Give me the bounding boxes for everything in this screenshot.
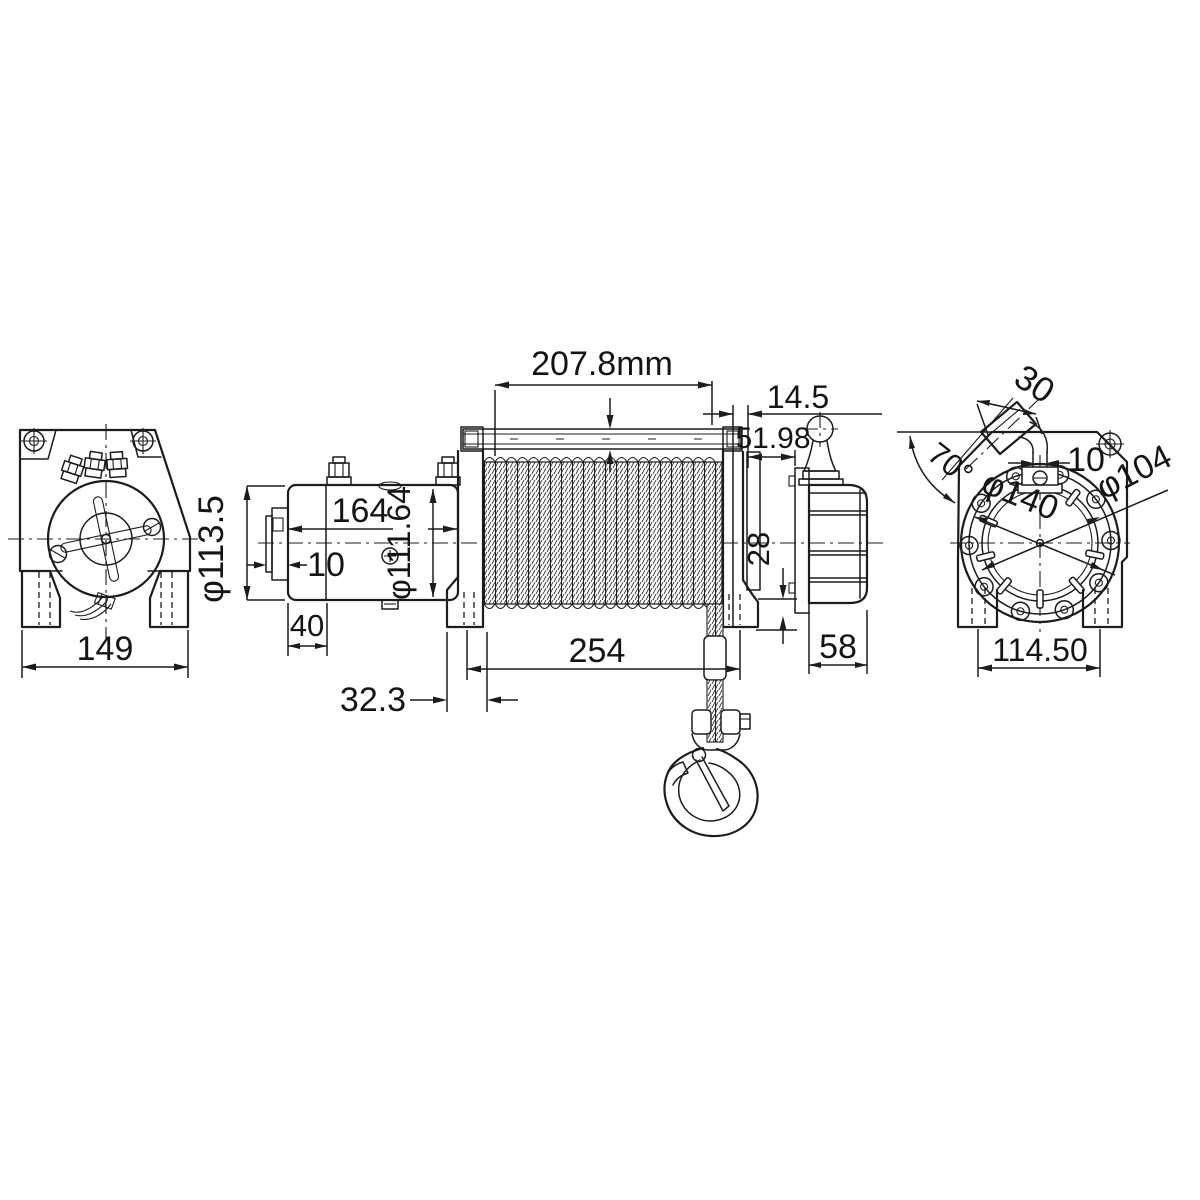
dim-label-40: 40 [290,608,324,643]
dim-overall-width: 149 [22,630,188,678]
cable-and-hook [665,604,758,836]
dim-label-51-98: 51.98 [735,422,810,455]
dim-label-114-50: 114.50 [992,632,1088,668]
dim-housing-width: 58 [809,610,867,674]
dim-drum-diameter: φ111.64 [381,486,437,600]
ear-bolt-right [130,428,156,454]
dim-label-207-8: 207.8mm [531,345,673,383]
dim-label-149: 149 [77,630,134,668]
winch-drawing-page: 149 φ113.5 [0,0,1200,1200]
dim-label-58: 58 [819,628,857,666]
spoke-bolt-right [144,519,161,536]
spoke-bolt-left [50,546,67,563]
dim-motor-diameter: φ113.5 [192,486,285,603]
dim-drum-length: 207.8mm [495,345,712,472]
tie-bar [461,427,742,451]
foot-left [22,571,60,627]
drum-cable [484,458,722,609]
dim-foot-spacing: 114.50 [978,629,1100,677]
dim-end-cap: 10 [247,546,345,584]
dim-label-113-5: φ113.5 [192,495,231,603]
dim-label-164: 164 [332,492,389,530]
dim-label-111-64: φ111.64 [381,486,417,600]
hook [665,748,758,836]
dim-motor-foot: 40 [288,603,327,656]
ear-bolt-left [21,428,47,454]
dim-label-32-3: 32.3 [340,681,406,719]
foot-right [150,571,188,627]
dim-label-10-cap: 10 [307,546,345,584]
left-view-motor-end: 149 φ113.5 [8,424,285,678]
winch-drawing: 149 φ113.5 [0,0,1200,1200]
dim-mount-spacing: 254 [467,630,740,680]
clevis [692,710,750,750]
dim-label-254: 254 [569,632,626,670]
dim-label-28: 28 [741,532,776,566]
right-view-gearbox-end: 70° 30 10 φ140 φ104 114.50 [897,357,1178,677]
cable-ferrule [704,636,726,680]
hook-latch [696,757,729,811]
dim-label-14-5: 14.5 [767,379,829,415]
dim-foot-width: 32.3 [340,632,518,719]
motor-terminals [59,451,128,484]
dim-lever-grip: 30 [977,357,1061,435]
side-view: 207.8mm 14.5 51.98 164 10 φ111.64 [247,345,885,836]
wire-bundle [70,593,115,620]
